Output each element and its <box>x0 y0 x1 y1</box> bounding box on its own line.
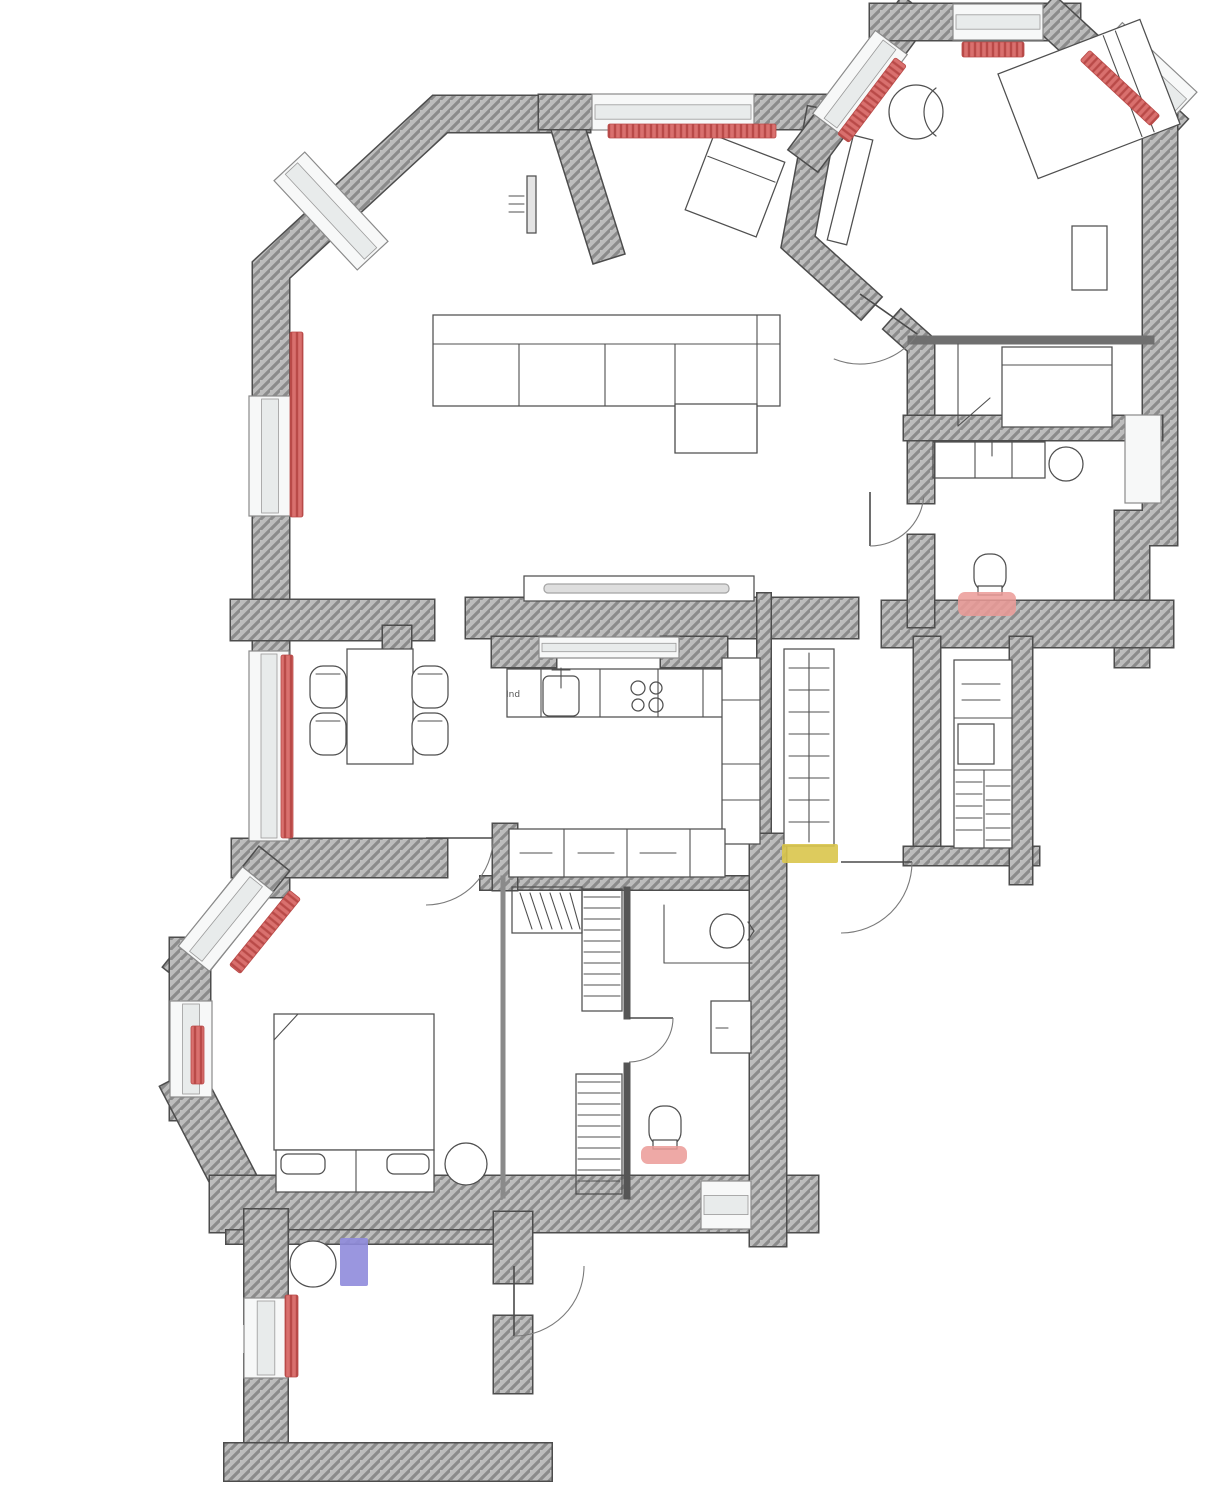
kitchen-annotation: Ind <box>506 690 520 700</box>
bathroom1-cabinet <box>711 1001 751 1053</box>
bedroom1-pouf <box>445 1143 487 1185</box>
closet-hanger-slant <box>550 893 562 929</box>
window-bedroom2-top <box>953 4 1043 40</box>
wall-right-outer <box>1132 106 1160 650</box>
window-utility-left <box>244 1298 288 1378</box>
dining-chair <box>412 713 448 755</box>
tv-screen <box>544 584 729 593</box>
door-entry-swing <box>841 862 912 933</box>
utility-table <box>290 1241 336 1287</box>
bathroom2-basin <box>1049 447 1083 481</box>
labels-layer: Ind <box>506 690 520 700</box>
bathroom2-vanity <box>933 442 1045 478</box>
door-bathroom1 <box>629 1018 673 1062</box>
window-kitchen-interior <box>539 637 679 658</box>
radiator-utility-left <box>285 1295 298 1377</box>
window-bay-diagonal <box>178 867 273 971</box>
dining-chair <box>310 666 346 708</box>
washing-machine-blue <box>340 1238 368 1286</box>
dining-chair <box>412 666 448 708</box>
closet2-wardrobe <box>1002 347 1112 427</box>
wall-alcove-left-slant <box>566 122 604 243</box>
radiator-bedroom2-top <box>962 42 1024 57</box>
bedroom1-pillow <box>281 1154 325 1174</box>
bedroom1-bed <box>274 1014 434 1150</box>
window-dining-left-glass <box>261 654 277 838</box>
closet-rail-right <box>582 889 622 1011</box>
door-bathroom1-swing <box>629 1018 673 1062</box>
radiator-alcove <box>608 124 776 138</box>
sofa-body <box>433 315 780 406</box>
closet-hanger-slant <box>520 893 532 929</box>
bedroom1-pillow <box>387 1154 429 1174</box>
bedroom2-dresser <box>1072 226 1107 290</box>
window-bathroom1-inset <box>701 1181 751 1229</box>
radiator-bedroom1-left <box>191 1026 204 1084</box>
accent-yellow-threshold <box>782 844 838 863</box>
dining-table <box>347 649 413 764</box>
closet-hanger-slant <box>560 893 572 929</box>
wall-living-right-upper <box>902 328 921 490</box>
alcove-armchair <box>685 135 785 237</box>
window-kitchen-interior-glass <box>542 643 676 651</box>
kitchen-tall-unit <box>722 658 760 844</box>
window-utility-left-glass <box>257 1301 275 1375</box>
sofa-chaise <box>675 404 757 453</box>
radiator-bathroom1-blob <box>641 1146 687 1164</box>
window-bedroom2-top-glass <box>956 15 1040 29</box>
window-alcove-top-glass <box>595 105 751 119</box>
closet-hanger-slant <box>570 893 580 929</box>
closet-hanger-slant <box>530 893 542 929</box>
dining-chair <box>310 713 346 755</box>
window-living-left-glass <box>262 399 279 513</box>
niche-bedroom2-shelf <box>1125 415 1161 503</box>
radiator-bathroom2-blob <box>958 592 1016 616</box>
radiator-living-left <box>290 332 303 517</box>
floor-plan-page: Ind <box>0 0 1209 1500</box>
bathroom1-sink <box>710 914 744 948</box>
window-bathroom1-inset-glass <box>704 1195 748 1214</box>
floor-plan-drawing: Ind <box>0 0 1209 1500</box>
niche-bedroom2-shelf-frame <box>1125 415 1161 503</box>
bedroom2-chair <box>889 85 943 139</box>
hall-shelf-unit <box>954 660 1012 848</box>
window-living-left <box>249 396 291 516</box>
radiator-dining-left <box>281 655 293 838</box>
door-entry <box>841 862 912 933</box>
closet-hanger-slant <box>540 893 552 929</box>
wall-tv <box>527 176 536 233</box>
